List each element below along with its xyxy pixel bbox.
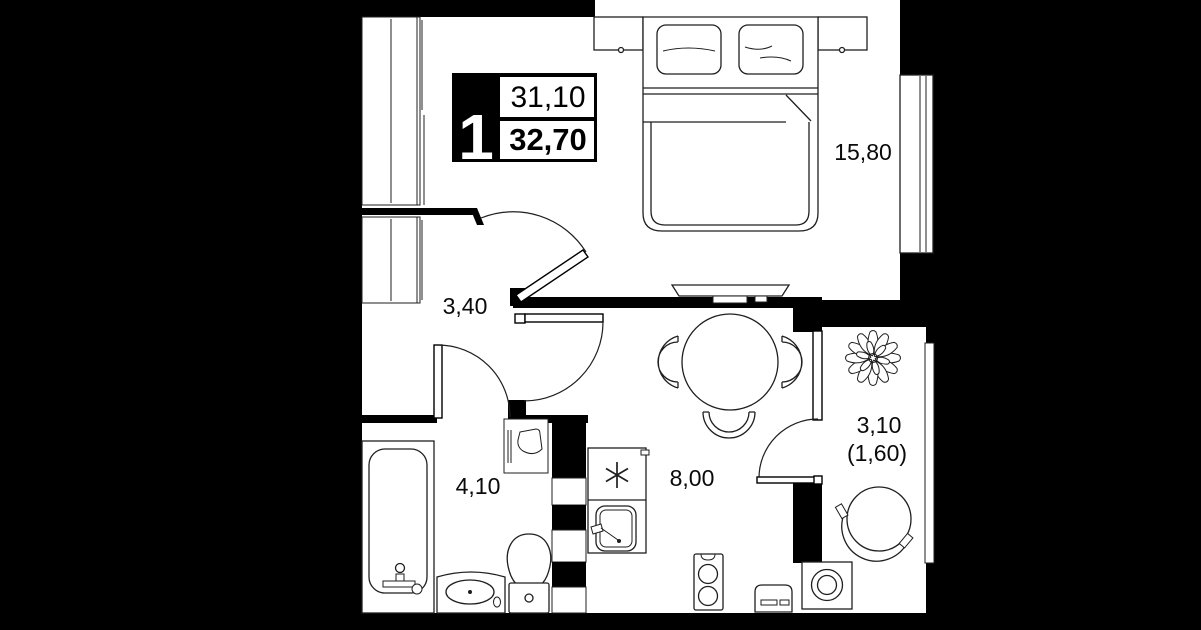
vent-shaft-icon [552,415,586,613]
wardrobe-icon [362,17,424,205]
floor-plan-svg: 15,80 3,40 4,10 8,00 3,10 (1,60) 1 31,10… [0,0,1201,630]
kitchen-balcony-wall [793,483,822,563]
kitchen-area-label: 8,00 [670,465,715,491]
bathtub-icon [362,441,434,613]
two-burner-cooktop-icon [694,554,723,610]
balcony-glazing [925,343,934,563]
bedroom-kitchen-wall [513,297,793,308]
bedroom-area-label: 15,80 [834,139,892,165]
bedroom-window [900,75,933,253]
floor-plan-screenshot: 15,80 3,40 4,10 8,00 3,10 (1,60) 1 31,10… [0,0,1201,630]
balcony-reduced-area-label: (1,60) [847,440,907,466]
double-bed-icon [643,17,818,231]
water-heater-icon [504,419,548,473]
bedroom-balcony-wall [822,300,934,327]
appliance-icon [755,585,792,612]
badge-rooms-count: 1 [458,101,494,173]
bathroom-area-label: 4,10 [456,473,501,499]
nightstand-icon [818,17,867,53]
pillow-icon [739,25,803,74]
toilet-icon [507,534,550,613]
vanity-sink-icon [437,572,505,613]
badge-lower-area: 32,70 [509,122,587,157]
window-icon [900,75,933,253]
hallway-area-label: 3,40 [443,293,488,319]
kitchen-sink-icon [591,506,636,551]
badge-upper-area: 31,10 [510,81,585,114]
entrance-wall [362,208,473,215]
balcony-area-label: 3,10 [857,412,902,438]
pillow-icon [657,25,721,74]
bottom-wall [355,613,940,630]
washing-machine-icon [802,562,852,609]
closet-icon [362,217,422,303]
nightstand-icon [594,17,643,53]
bathroom-wall [362,415,437,423]
window-icon [925,343,934,563]
dining-table-icon [682,314,778,410]
apartment-badge: 1 31,10 32,70 [452,73,597,173]
